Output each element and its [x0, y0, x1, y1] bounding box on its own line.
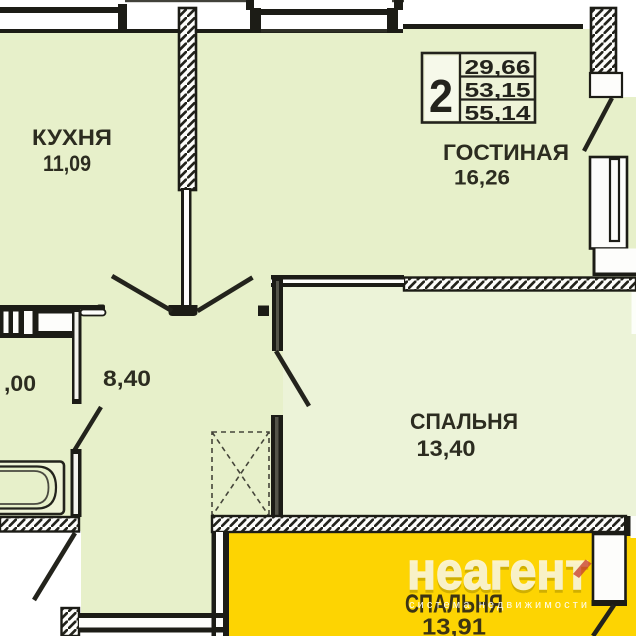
svg-text:29,66: 29,66 [465, 56, 531, 79]
svg-text:КУХНЯ: КУХНЯ [32, 125, 112, 150]
svg-text:53,15: 53,15 [465, 79, 531, 102]
svg-text:16,26: 16,26 [454, 166, 510, 190]
svg-text:11,09: 11,09 [43, 151, 91, 176]
svg-text:,00: ,00 [4, 371, 36, 396]
svg-text:система недвижимости: система недвижимости [409, 599, 590, 611]
svg-text:13,40: 13,40 [417, 436, 476, 461]
svg-text:55,14: 55,14 [465, 102, 532, 125]
svg-text:2: 2 [429, 70, 453, 122]
svg-text:неагент: неагент [407, 542, 589, 601]
svg-text:СПАЛЬНЯ: СПАЛЬНЯ [410, 409, 518, 434]
svg-text:13,91: 13,91 [422, 614, 486, 636]
svg-text:ГОСТИНАЯ: ГОСТИНАЯ [443, 140, 569, 165]
svg-text:8,40: 8,40 [103, 366, 151, 391]
